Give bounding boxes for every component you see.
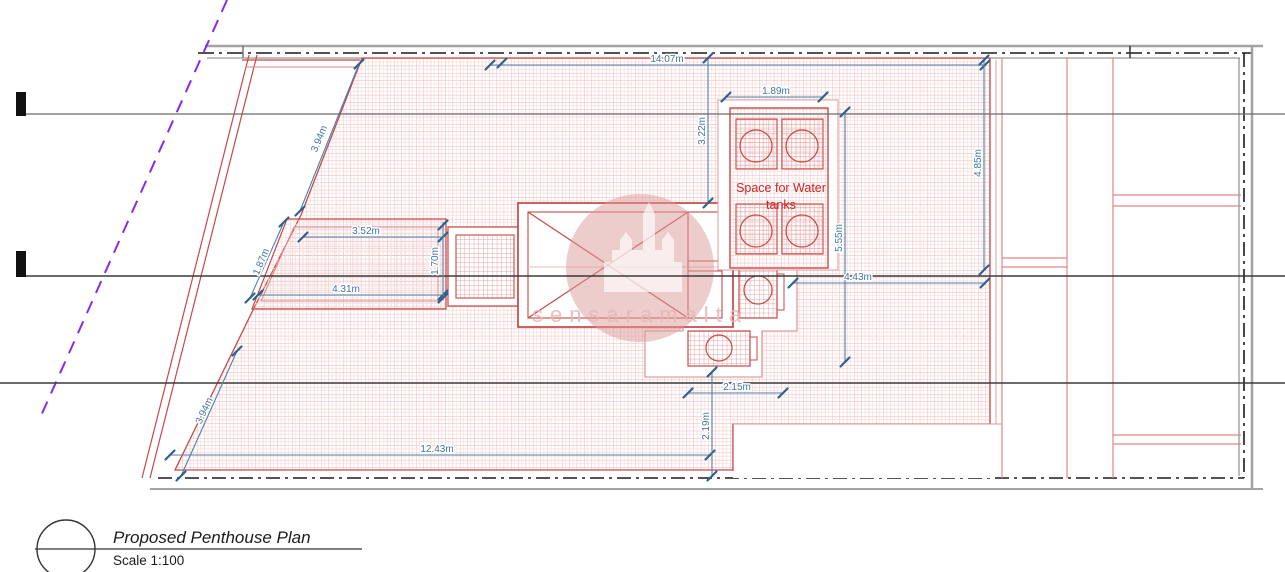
penthouse-plan-drawing: sensaramalta Space for Water tanks 14.07…	[0, 0, 1285, 572]
dim-4-31: 4.31m	[332, 284, 360, 295]
dim-14-07: 14.07m	[650, 54, 683, 65]
dim-5-55: 5.55m	[834, 224, 845, 252]
svg-text:tanks: tanks	[766, 198, 796, 212]
dim-12-43: 12.43m	[420, 444, 453, 455]
service-shaft	[448, 227, 522, 306]
roof-notch	[733, 424, 1002, 478]
drawing-title: Proposed Penthouse Plan	[113, 528, 311, 547]
watermark-text: sensaramalta	[532, 302, 748, 327]
water-tank-single-lower	[688, 331, 757, 366]
dim-4-43: 4.43m	[844, 272, 872, 283]
dim-2-19: 2.19m	[701, 412, 712, 440]
title-block: Proposed Penthouse Plan Scale 1:100	[35, 520, 362, 572]
dim-4-85: 4.85m	[973, 149, 984, 177]
dim-3-52: 3.52m	[352, 226, 380, 237]
dim-1-89: 1.89m	[762, 86, 790, 97]
dim-1-70: 1.70m	[430, 247, 441, 275]
section-marker-icon	[16, 251, 26, 277]
dim-2-15: 2.15m	[723, 382, 751, 393]
adjacent-roof-lines	[996, 58, 1241, 478]
section-marker-icon	[16, 92, 26, 116]
penthouse-plan-page: sensaramalta Space for Water tanks 14.07…	[0, 0, 1285, 572]
drawing-scale: Scale 1:100	[113, 553, 184, 568]
boundary-purple-line	[40, 0, 227, 418]
dim-3-22: 3.22m	[697, 117, 708, 145]
svg-text:Space for Water: Space for Water	[736, 181, 826, 195]
title-bubble-icon	[37, 520, 95, 572]
